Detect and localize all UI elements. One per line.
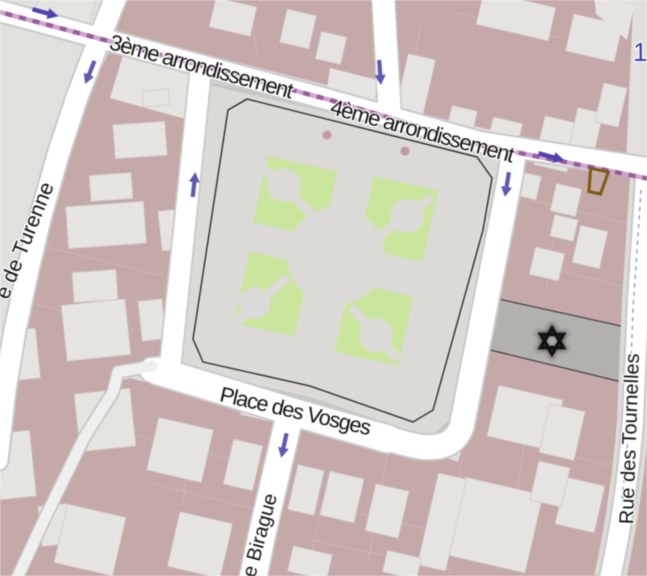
svg-text:1: 1 xyxy=(633,37,647,67)
